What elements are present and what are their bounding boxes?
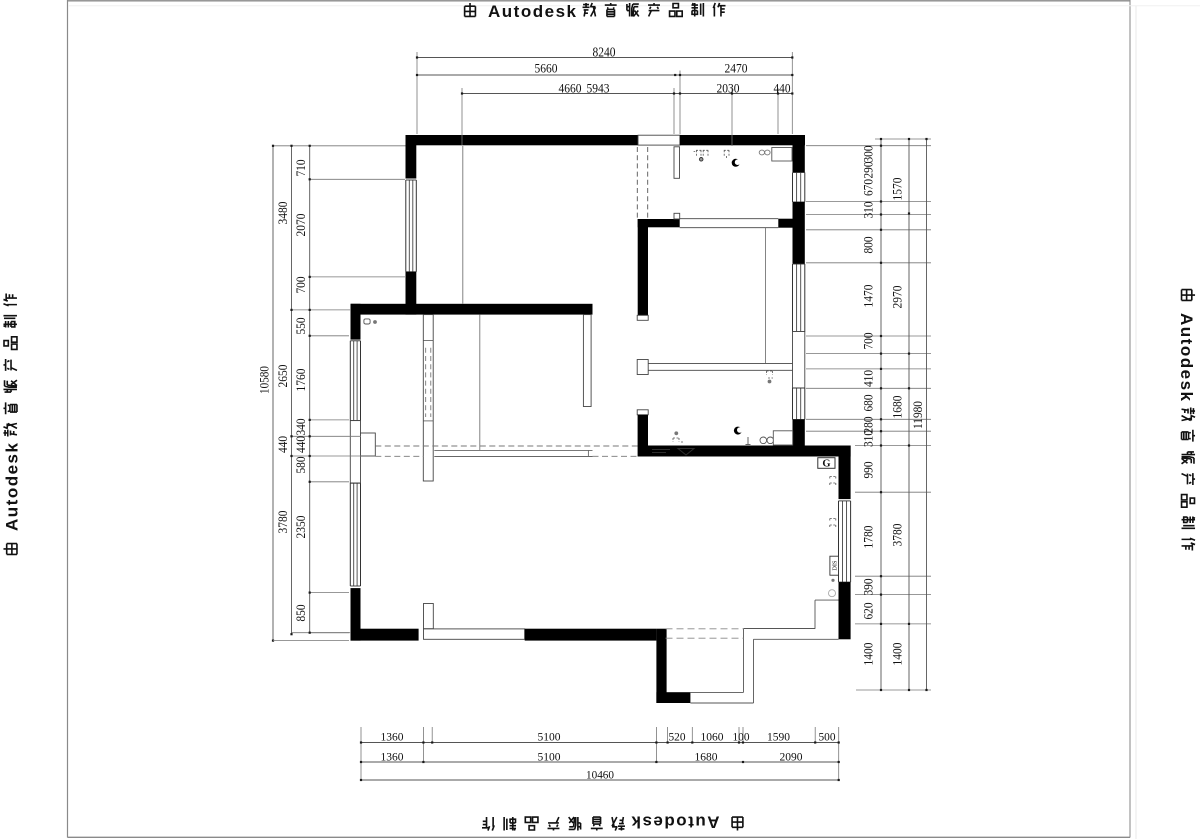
svg-text:3780: 3780 xyxy=(276,511,290,534)
svg-text:2650: 2650 xyxy=(276,365,290,388)
svg-text:850: 850 xyxy=(294,605,308,622)
svg-text:550: 550 xyxy=(294,318,308,335)
svg-text:700: 700 xyxy=(294,277,308,294)
svg-text:440: 440 xyxy=(294,436,308,453)
svg-text:1360: 1360 xyxy=(381,730,404,744)
svg-text:1470: 1470 xyxy=(862,285,876,308)
svg-text:1760: 1760 xyxy=(294,369,308,392)
svg-text:800: 800 xyxy=(862,237,876,254)
svg-text:410: 410 xyxy=(862,370,876,387)
svg-text:4660: 4660 xyxy=(559,80,582,95)
svg-text:2090: 2090 xyxy=(780,750,803,764)
svg-text:5943: 5943 xyxy=(587,80,610,95)
svg-text:5100: 5100 xyxy=(538,750,561,764)
svg-text:1680: 1680 xyxy=(891,396,905,419)
svg-text:1400: 1400 xyxy=(891,643,905,666)
svg-text:1780: 1780 xyxy=(862,526,876,549)
svg-text:5100: 5100 xyxy=(538,730,561,744)
svg-text:620: 620 xyxy=(862,603,876,620)
svg-text:8240: 8240 xyxy=(593,46,616,61)
svg-text:1570: 1570 xyxy=(891,178,905,201)
svg-text:1680: 1680 xyxy=(695,750,718,764)
svg-text:100: 100 xyxy=(733,730,750,744)
svg-text:680: 680 xyxy=(862,395,876,412)
svg-text:310: 310 xyxy=(862,202,876,219)
svg-text:710: 710 xyxy=(294,160,308,177)
svg-text:440: 440 xyxy=(276,436,290,453)
svg-text:500: 500 xyxy=(819,730,836,744)
svg-text:5660: 5660 xyxy=(535,61,558,76)
svg-text:11980: 11980 xyxy=(911,401,925,429)
svg-text:2070: 2070 xyxy=(294,214,308,237)
svg-text:3480: 3480 xyxy=(276,202,290,225)
svg-text:990: 990 xyxy=(862,462,876,479)
svg-text:310: 310 xyxy=(862,430,876,447)
svg-text:2350: 2350 xyxy=(294,516,308,539)
svg-text:520: 520 xyxy=(669,730,686,744)
svg-text:290: 290 xyxy=(862,162,876,179)
svg-text:10580: 10580 xyxy=(258,366,272,394)
svg-text:2030: 2030 xyxy=(717,80,740,95)
svg-text:340: 340 xyxy=(294,419,308,436)
svg-text:1060: 1060 xyxy=(701,730,724,744)
svg-text:440: 440 xyxy=(774,80,791,95)
svg-text:1590: 1590 xyxy=(767,730,790,744)
svg-text:2970: 2970 xyxy=(891,286,905,309)
svg-text:10460: 10460 xyxy=(586,768,614,782)
svg-text:670: 670 xyxy=(862,179,876,196)
svg-text:DIS: DIS xyxy=(831,560,838,571)
svg-text:390: 390 xyxy=(862,579,876,596)
svg-text:2470: 2470 xyxy=(725,61,748,76)
svg-text:580: 580 xyxy=(294,457,308,474)
svg-text:1400: 1400 xyxy=(862,643,876,666)
svg-text:G: G xyxy=(822,458,830,469)
svg-text:700: 700 xyxy=(862,333,876,350)
svg-text:300: 300 xyxy=(862,146,876,163)
svg-text:1360: 1360 xyxy=(381,750,404,764)
svg-text:3780: 3780 xyxy=(891,524,905,547)
